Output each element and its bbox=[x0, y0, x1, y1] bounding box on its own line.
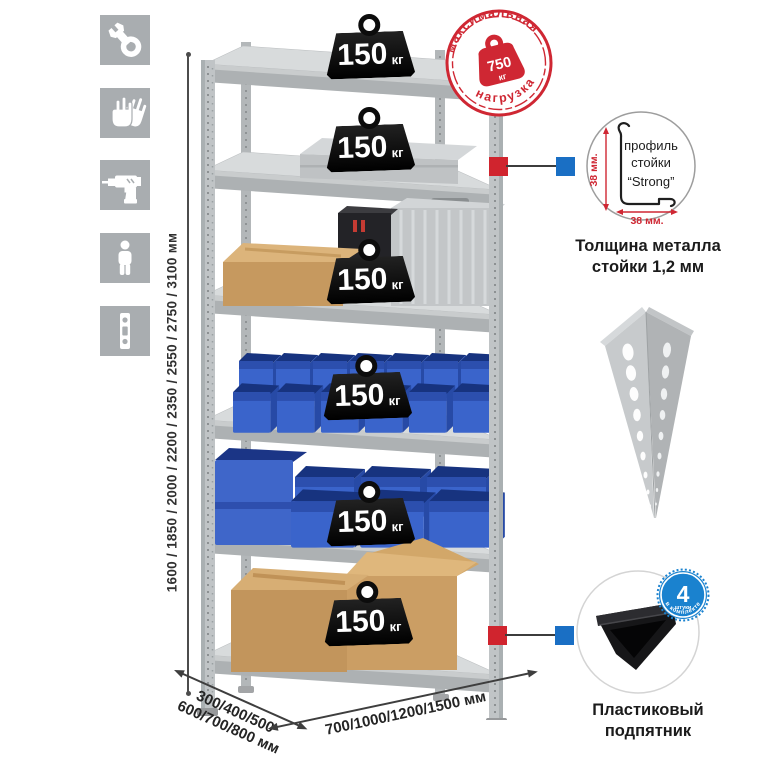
load-unit: кг bbox=[389, 619, 401, 634]
shelf-load-badge: 150кг bbox=[324, 237, 416, 304]
callout-line-bottom bbox=[505, 634, 557, 636]
drill-icon bbox=[100, 160, 150, 210]
callout-line-top bbox=[506, 165, 558, 167]
load-value: 150 bbox=[335, 606, 386, 638]
load-unit: кг bbox=[388, 393, 400, 408]
profile-label-3: “Strong” bbox=[628, 174, 675, 189]
load-unit: кг bbox=[391, 519, 403, 534]
horizontal-dim-label: 38 мм. bbox=[630, 215, 663, 227]
plastic-foot-detail: 4 штуки в комплекте bbox=[572, 566, 714, 702]
load-value: 150 bbox=[337, 506, 388, 538]
person-icon bbox=[100, 233, 150, 283]
profile-caption-line2: стойки 1,2 мм bbox=[560, 257, 736, 278]
level-icon bbox=[100, 306, 150, 356]
foot-caption-line2: подпятник bbox=[560, 721, 736, 742]
load-value: 150 bbox=[337, 132, 388, 164]
foot-caption-line1: Пластиковый bbox=[560, 700, 736, 721]
product-infographic: 1600 / 1850 / 2000 / 2200 / 2350 / 2550 … bbox=[0, 0, 765, 765]
gloves-icon bbox=[100, 88, 150, 138]
front-left-post bbox=[201, 60, 215, 712]
front-right-post bbox=[489, 82, 503, 720]
load-value: 150 bbox=[334, 380, 385, 412]
profile-caption-line1: Толщина металла bbox=[560, 236, 736, 257]
load-unit: кг bbox=[391, 145, 403, 160]
wrench-icon bbox=[100, 15, 150, 65]
shelf-load-badge: 150кг bbox=[324, 105, 416, 172]
profile-caption: Толщина металла стойки 1,2 мм bbox=[560, 236, 736, 278]
shelf-load-badge: 150кг bbox=[321, 353, 413, 420]
profile-label-2: стойки bbox=[631, 155, 671, 170]
shelf-load-badge: 150кг bbox=[322, 579, 414, 646]
callout-marker-blue-top bbox=[556, 157, 575, 176]
vertical-dim-label: 38 мм. bbox=[588, 153, 600, 186]
profile-label-1: профиль bbox=[624, 138, 678, 153]
load-unit: кг bbox=[391, 277, 403, 292]
count-badge-value: 4 bbox=[677, 581, 690, 607]
load-value: 150 bbox=[337, 39, 388, 71]
shelf-load-badge: 150кг bbox=[324, 479, 416, 546]
load-value: 150 bbox=[337, 264, 388, 296]
post-profile-detail: 38 мм. 38 мм. профиль стойки “Strong” bbox=[583, 108, 699, 230]
load-unit: кг bbox=[391, 52, 403, 67]
height-dimension-label: 1600 / 1850 / 2000 / 2200 / 2350 / 2550 … bbox=[165, 198, 180, 628]
height-dimension-line bbox=[187, 54, 189, 694]
angle-post-image bbox=[597, 306, 701, 531]
shelf-load-badge: 150кг bbox=[324, 12, 416, 79]
foot-caption: Пластиковый подпятник bbox=[560, 700, 736, 742]
